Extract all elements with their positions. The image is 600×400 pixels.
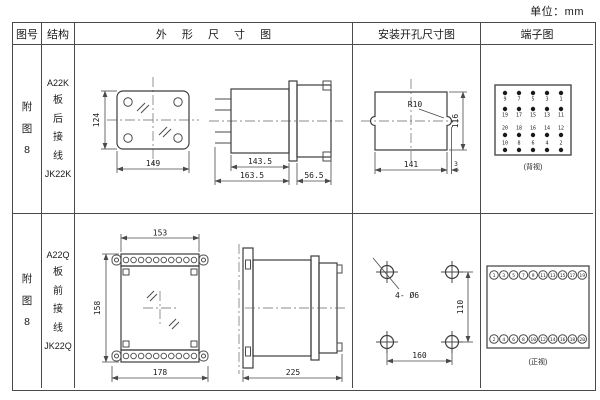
outline-side-view-drawing: 143.5 163.5 56.5 (207, 69, 347, 194)
svg-text:17: 17 (516, 113, 522, 119)
structure-char: 前 (53, 287, 63, 297)
col-header-figure: 图号 (13, 23, 42, 45)
svg-text:5: 5 (512, 273, 515, 279)
svg-text:11: 11 (540, 273, 546, 279)
terminal-caption: (背视) (524, 162, 543, 171)
row1-terminal-cell: 9753119171513112018161412108642 (背视) (481, 45, 593, 214)
svg-text:18: 18 (570, 337, 576, 343)
svg-text:20: 20 (579, 337, 585, 343)
svg-text:8: 8 (522, 337, 525, 343)
row1-mounting-cell: R10 141 3 116 (353, 45, 481, 214)
svg-text:15: 15 (530, 113, 536, 119)
col-header-structure: 结构 (42, 23, 75, 45)
svg-text:4: 4 (545, 141, 548, 147)
row2-figure-cell: 附 图 8 (13, 214, 42, 388)
dim-body-length: 143.5 (248, 157, 272, 166)
svg-text:13: 13 (550, 273, 556, 279)
svg-text:10: 10 (502, 141, 508, 147)
outline-front-view-drawing: 153 (91, 226, 226, 386)
model-code: A22K (47, 79, 69, 88)
terminal-row-bottom: 2468101214161820 (490, 335, 587, 344)
svg-text:6: 6 (531, 141, 534, 147)
mounting-holes-drawing: 4- Ø6 110 160 (355, 232, 480, 387)
svg-text:11: 11 (558, 113, 564, 119)
terminal-diagram-back-view: 9753119171513112018161412108642 (背视) (481, 73, 593, 191)
relay-dimension-sheet: 单位：mm 图号 结构 外 形 尺 寸 图 安装开孔尺寸图 端子图 附 图 8 … (0, 0, 600, 400)
svg-text:10: 10 (530, 337, 536, 343)
terminal-row-top: 135791113151719 (490, 271, 587, 280)
svg-text:20: 20 (502, 126, 508, 132)
figure-char: 8 (24, 317, 30, 328)
model-code: A22Q (46, 251, 69, 260)
structure-char: 接 (53, 133, 63, 143)
svg-text:14: 14 (550, 337, 556, 343)
row1-structure-cell: A22K 板 后 接 线 JK22K (42, 45, 75, 214)
svg-text:15: 15 (560, 273, 566, 279)
figure-char: 8 (24, 145, 30, 156)
svg-text:19: 19 (502, 113, 508, 119)
unit-label: 单位：mm (530, 3, 584, 19)
outline-front-view-drawing: 124 149 (87, 69, 207, 194)
structure-char: 板 (53, 96, 63, 106)
model-code: JK22Q (44, 342, 72, 351)
dim-total-length: 225 (286, 368, 301, 377)
svg-text:6: 6 (512, 337, 515, 343)
figure-char: 图 (22, 124, 33, 135)
svg-text:3: 3 (545, 97, 548, 103)
dim-cutout-width: 141 (404, 160, 419, 169)
dim-top-width: 153 (153, 229, 168, 238)
terminal-diagram-front-view: 135791113151719 2468101214161820 (正视) (481, 240, 593, 385)
svg-text:7: 7 (522, 273, 525, 279)
svg-text:4: 4 (502, 337, 505, 343)
terminal-strip-top (123, 257, 197, 263)
dim-notch-radius: R10 (408, 100, 423, 109)
svg-text:17: 17 (570, 273, 576, 279)
figure-char: 图 (22, 296, 33, 307)
svg-text:16: 16 (560, 337, 566, 343)
terminal-caption: (正视) (529, 357, 548, 366)
structure-char: 线 (53, 324, 63, 334)
row1-figure-cell: 附 图 8 (13, 45, 42, 214)
svg-text:1: 1 (559, 97, 562, 103)
terminal-grid: 9753119171513112018161412108642 (502, 91, 564, 152)
svg-text:2: 2 (559, 141, 562, 147)
svg-text:7: 7 (517, 97, 520, 103)
dim-rear-length: 56.5 (304, 171, 323, 180)
outline-side-view-drawing: 225 (227, 226, 352, 386)
structure-char: 接 (53, 305, 63, 315)
svg-text:12: 12 (540, 337, 546, 343)
structure-char: 板 (53, 268, 63, 278)
row2-terminal-cell: 135791113151719 2468101214161820 (正视) (481, 214, 593, 388)
col-header-outline: 外 形 尺 寸 图 (75, 23, 353, 45)
dim-horizontal-spacing: 160 (412, 351, 427, 360)
row1-outline-cell: 124 149 143.5 (75, 45, 353, 214)
svg-text:3: 3 (502, 273, 505, 279)
row2-structure-cell: A22Q 板 前 接 线 JK22Q (42, 214, 75, 388)
dim-bottom-width: 178 (153, 368, 168, 377)
dim-cutout-height: 116 (451, 114, 460, 129)
svg-text:8: 8 (517, 141, 520, 147)
row2-mounting-cell: 4- Ø6 110 160 (353, 214, 481, 388)
col-header-terminal: 端子图 (481, 23, 593, 45)
dim-height: 124 (92, 113, 101, 128)
svg-text:19: 19 (579, 273, 585, 279)
dim-vertical-spacing: 110 (456, 300, 465, 315)
row2-outline-cell: 153 (75, 214, 353, 388)
dim-total-length: 163.5 (240, 171, 264, 180)
svg-text:14: 14 (544, 126, 550, 132)
svg-text:2: 2 (493, 337, 496, 343)
dim-width: 149 (146, 159, 161, 168)
svg-text:9: 9 (503, 97, 506, 103)
structure-char: 线 (53, 152, 63, 162)
dim-offset: 3 (454, 160, 458, 168)
figure-char: 附 (22, 274, 33, 285)
svg-text:9: 9 (532, 273, 535, 279)
svg-text:13: 13 (544, 113, 550, 119)
svg-text:1: 1 (493, 273, 496, 279)
svg-text:12: 12 (558, 126, 564, 132)
svg-text:18: 18 (516, 126, 522, 132)
terminal-strip-bottom (123, 353, 197, 359)
dim-hole-spec: 4- Ø6 (395, 290, 419, 300)
mounting-cutout-drawing: R10 141 3 116 (355, 67, 480, 192)
structure-char: 后 (53, 115, 63, 125)
svg-text:5: 5 (531, 97, 534, 103)
dim-height: 158 (93, 301, 102, 316)
col-header-mounting: 安装开孔尺寸图 (353, 23, 481, 45)
figure-char: 附 (22, 102, 33, 113)
svg-text:16: 16 (530, 126, 536, 132)
dimension-table: 图号 结构 外 形 尺 寸 图 安装开孔尺寸图 端子图 附 图 8 A22K 板… (12, 22, 596, 391)
model-code: JK22K (45, 170, 72, 179)
